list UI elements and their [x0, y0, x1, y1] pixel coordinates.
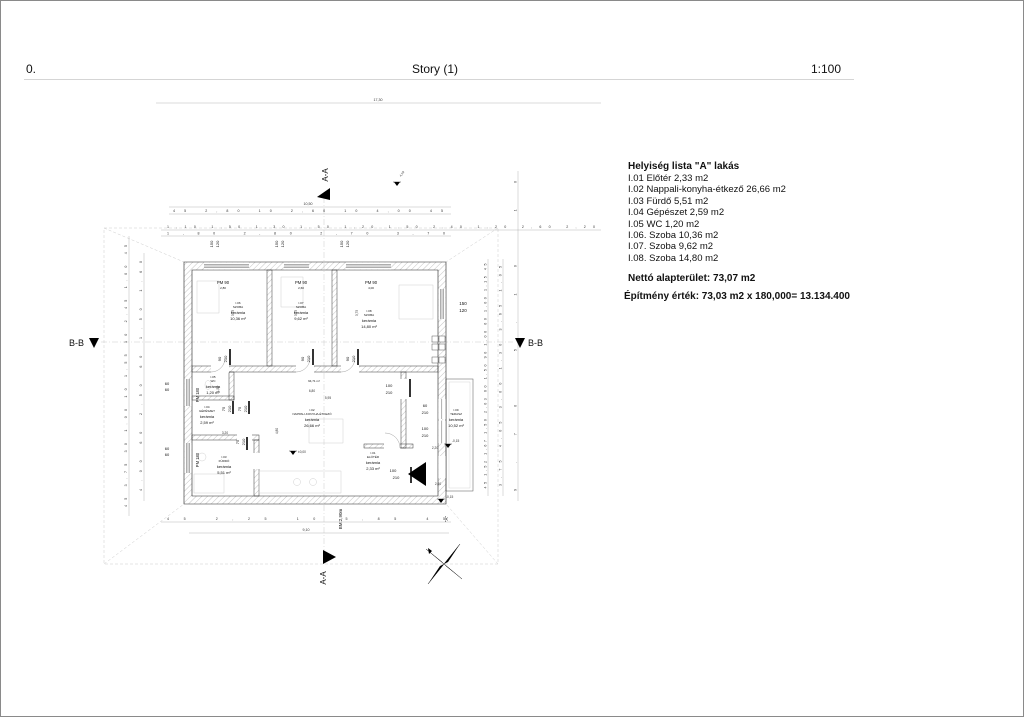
room-label-i09: I.09 TERASZ kerámia 10,52 m²	[448, 408, 464, 428]
svg-text:90: 90	[217, 356, 222, 361]
svg-text:ELŐTÉR: ELŐTÉR	[367, 454, 380, 459]
room-list-item: I.02 Nappali-konyha-étkező 26,66 m2	[628, 184, 898, 195]
section-a-tag: "A"	[444, 516, 449, 523]
floor-plan-drawing: 17,30 10,50 45 2,80 10 2,60 10 4,00 45 1…	[1, 1, 1023, 716]
svg-text:4,19: 4,19	[399, 170, 406, 178]
room-list-title: Helyiség lista "A" lakás	[628, 161, 898, 172]
svg-text:60: 60	[165, 452, 170, 457]
svg-text:4,00: 4,00	[368, 286, 374, 290]
svg-text:A-A: A-A	[321, 168, 330, 182]
svg-text:210: 210	[422, 410, 429, 415]
svg-text:120: 120	[345, 240, 350, 247]
svg-text:1,20 m²: 1,20 m²	[206, 390, 220, 395]
svg-text:26,66 m²: 26,66 m²	[304, 423, 320, 428]
svg-text:120: 120	[215, 240, 220, 247]
svg-text:120: 120	[459, 308, 467, 313]
dim-bottom: 45 2,25 10 5,85 45	[167, 517, 445, 521]
level-marker-icon	[393, 182, 401, 186]
svg-text:4,80: 4,80	[275, 428, 279, 434]
svg-text:2,33 m²: 2,33 m²	[366, 466, 380, 471]
room-label-i07: I.07 SZOBA kerámia 9,62 m²	[294, 301, 309, 321]
dim-row1: 45 2,80 10 2,60 10 4,00 45	[173, 209, 443, 213]
svg-text:90: 90	[300, 356, 305, 361]
svg-text:90: 90	[345, 356, 350, 361]
room-list: Helyiség lista "A" lakás I.01 Előtér 2,3…	[628, 161, 898, 302]
svg-text:210: 210	[227, 405, 232, 412]
dim-bottom-total: 9,10	[303, 528, 310, 532]
door-size-labels: 90210 90210 90210 75210 75210 75210 100 …	[217, 355, 429, 480]
room-list-item: I.07. Szoba 9,62 m2	[628, 241, 898, 252]
svg-text:kerámia: kerámia	[305, 417, 320, 422]
svg-text:SZOBA: SZOBA	[364, 313, 374, 317]
room-label-i02: I.02 NAPPALI-KONYHA-ÉTKEZŐ kerámia 26,66…	[292, 408, 332, 428]
svg-text:75: 75	[221, 406, 226, 411]
dim-top-total: 17,30	[374, 98, 383, 102]
svg-text:210: 210	[351, 355, 356, 362]
svg-text:2,80: 2,80	[220, 286, 226, 290]
room-volume-label: 94,71 m³	[308, 379, 320, 383]
drawing-sheet: 0. Story (1) 1:100	[0, 0, 1024, 717]
svg-text:2,60: 2,60	[298, 286, 304, 290]
svg-text:150: 150	[274, 240, 279, 247]
svg-text:210: 210	[223, 355, 228, 362]
svg-text:60: 60	[165, 381, 170, 386]
svg-text:TERASZ: TERASZ	[450, 412, 462, 416]
dim-row2b: 1,80 2,80 2,70 3,70	[167, 232, 445, 236]
svg-text:100: 100	[422, 426, 429, 431]
svg-text:3,20: 3,20	[222, 431, 228, 435]
svg-text:210: 210	[393, 475, 400, 480]
svg-text:210: 210	[422, 433, 429, 438]
room-list-item: I.08. Szoba 14,80 m2	[628, 253, 898, 264]
svg-text:B-B: B-B	[69, 338, 84, 348]
room-labels: I.06 SZOBA kerámia 10,36 m² I.07 SZOBA k…	[199, 301, 465, 475]
svg-text:100: 100	[386, 383, 393, 388]
net-area-line: Nettó alapterület: 73,07 m2	[628, 273, 898, 284]
window-label-pm180-2: PM 180	[195, 452, 200, 467]
svg-text:±0,00: ±0,00	[298, 450, 306, 454]
svg-text:FÜRDŐ: FÜRDŐ	[219, 458, 230, 463]
room-list-item: I.01 Előtér 2,33 m2	[628, 173, 898, 184]
svg-text:210: 210	[386, 390, 393, 395]
svg-text:SZOBA: SZOBA	[296, 305, 306, 309]
window-label-pm90-1: PM 90	[217, 280, 230, 285]
room-label-i03: I.03 FÜRDŐ kerámia 5,51 m²	[217, 455, 232, 475]
window-label-pm90-2: PM 90	[295, 280, 308, 285]
svg-text:10,36 m²: 10,36 m²	[230, 316, 246, 321]
svg-text:B-B: B-B	[528, 338, 543, 348]
dim-left-col1: 45 3,75 30 1,00 10 1,55 10 2,45 1,00 45	[124, 245, 128, 507]
svg-text:5,51 m²: 5,51 m²	[217, 470, 231, 475]
svg-text:A-A: A-A	[319, 571, 328, 585]
svg-text:3,75: 3,75	[355, 310, 359, 316]
room-label-i05: I.05 WC kerámia 1,20 m²	[206, 375, 221, 395]
svg-text:kerámia: kerámia	[217, 464, 232, 469]
svg-text:75: 75	[235, 439, 240, 444]
section-marker-aa-bottom: A-A	[319, 550, 336, 585]
svg-text:-0,15: -0,15	[446, 495, 453, 499]
svg-text:14,80 m²: 14,80 m²	[361, 324, 377, 329]
dim-row1-total: 10,50	[304, 202, 313, 206]
svg-text:WC: WC	[211, 379, 217, 383]
section-marker-bb-right: B-B	[515, 338, 543, 348]
dim-row2: 1,10 1,50 1,30 1,50 1,20 1,50 2,40 1,20 …	[167, 225, 595, 229]
building-value-line: Építmény érték: 73,03 m2 x 180,000= 13.1…	[624, 291, 898, 302]
dim-right-col2: 3,75 4,05 3,00 1,30 3,65 1,05	[499, 266, 503, 486]
svg-text:60: 60	[423, 403, 428, 408]
room-list-item: I.05 WC 1,20 m2	[628, 219, 898, 230]
svg-text:kerámia: kerámia	[206, 384, 221, 389]
room-label-i06: I.06 SZOBA kerámia 10,36 m²	[230, 301, 246, 321]
room-label-i04: I.04 GÉPÉSZET kerámia 2,59 m²	[199, 405, 215, 425]
section-marker-bb-left: B-B	[69, 338, 99, 348]
svg-text:150: 150	[209, 240, 214, 247]
svg-text:2,20: 2,20	[432, 446, 438, 450]
svg-text:kerámia: kerámia	[231, 310, 246, 315]
svg-text:10,52 m²: 10,52 m²	[448, 423, 464, 428]
inner-dimensions: 3,75 3,75 3,75 6,80 5,95 4,80 2,20 3,20 …	[216, 310, 441, 486]
dim-right-col1: 45 1,52 1,67 1,50 2,03 60 1,50 90 1,00 6…	[484, 263, 488, 488]
svg-text:NAPPALI-KONYHA-ÉTKEZŐ: NAPPALI-KONYHA-ÉTKEZŐ	[292, 411, 332, 416]
svg-text:100: 100	[390, 468, 397, 473]
bm-height-label: BM:2,90m	[338, 508, 343, 529]
svg-text:kerámia: kerámia	[366, 460, 381, 465]
svg-text:9,62 m²: 9,62 m²	[294, 316, 308, 321]
section-marker-aa-top: A-A	[317, 168, 330, 200]
svg-text:210: 210	[243, 405, 248, 412]
svg-text:SZOBA: SZOBA	[233, 305, 243, 309]
dim-left-col2: 4,00 60 2,50 60 1,50 1,60	[139, 261, 143, 491]
terrace-outline	[446, 379, 473, 491]
svg-text:kerámia: kerámia	[294, 310, 309, 315]
svg-text:150: 150	[459, 301, 467, 306]
svg-text:210: 210	[241, 438, 246, 445]
svg-text:60: 60	[165, 446, 170, 451]
svg-text:-0,15: -0,15	[452, 439, 459, 443]
svg-text:2,59 m²: 2,59 m²	[200, 420, 214, 425]
svg-text:kerámia: kerámia	[200, 414, 215, 419]
svg-text:150: 150	[339, 240, 344, 247]
room-list-item: I.06. Szoba 10,36 m2	[628, 230, 898, 241]
svg-text:75: 75	[237, 406, 242, 411]
room-list-item: I.03 Fürdő 5,51 m2	[628, 196, 898, 207]
window-label-pm180-1: PM 180	[195, 387, 200, 402]
window-label-pm90-3: PM 90	[365, 280, 378, 285]
svg-text:210: 210	[306, 355, 311, 362]
room-list-item: I.04 Gépészet 2,59 m2	[628, 207, 898, 218]
svg-text:5,95: 5,95	[325, 396, 331, 400]
svg-text:60: 60	[165, 387, 170, 392]
svg-text:120: 120	[280, 240, 285, 247]
room-label-i01: I.01 ELŐTÉR kerámia 2,33 m²	[366, 451, 381, 471]
svg-text:GÉPÉSZET: GÉPÉSZET	[199, 408, 215, 413]
svg-text:6,80: 6,80	[309, 389, 315, 393]
svg-text:2,60: 2,60	[435, 482, 441, 486]
svg-text:kerámia: kerámia	[362, 318, 377, 323]
room-label-i08: I.08 SZOBA kerámia 14,80 m²	[361, 309, 377, 329]
svg-text:kerámia: kerámia	[449, 417, 464, 422]
level-marker-icon	[289, 451, 297, 455]
